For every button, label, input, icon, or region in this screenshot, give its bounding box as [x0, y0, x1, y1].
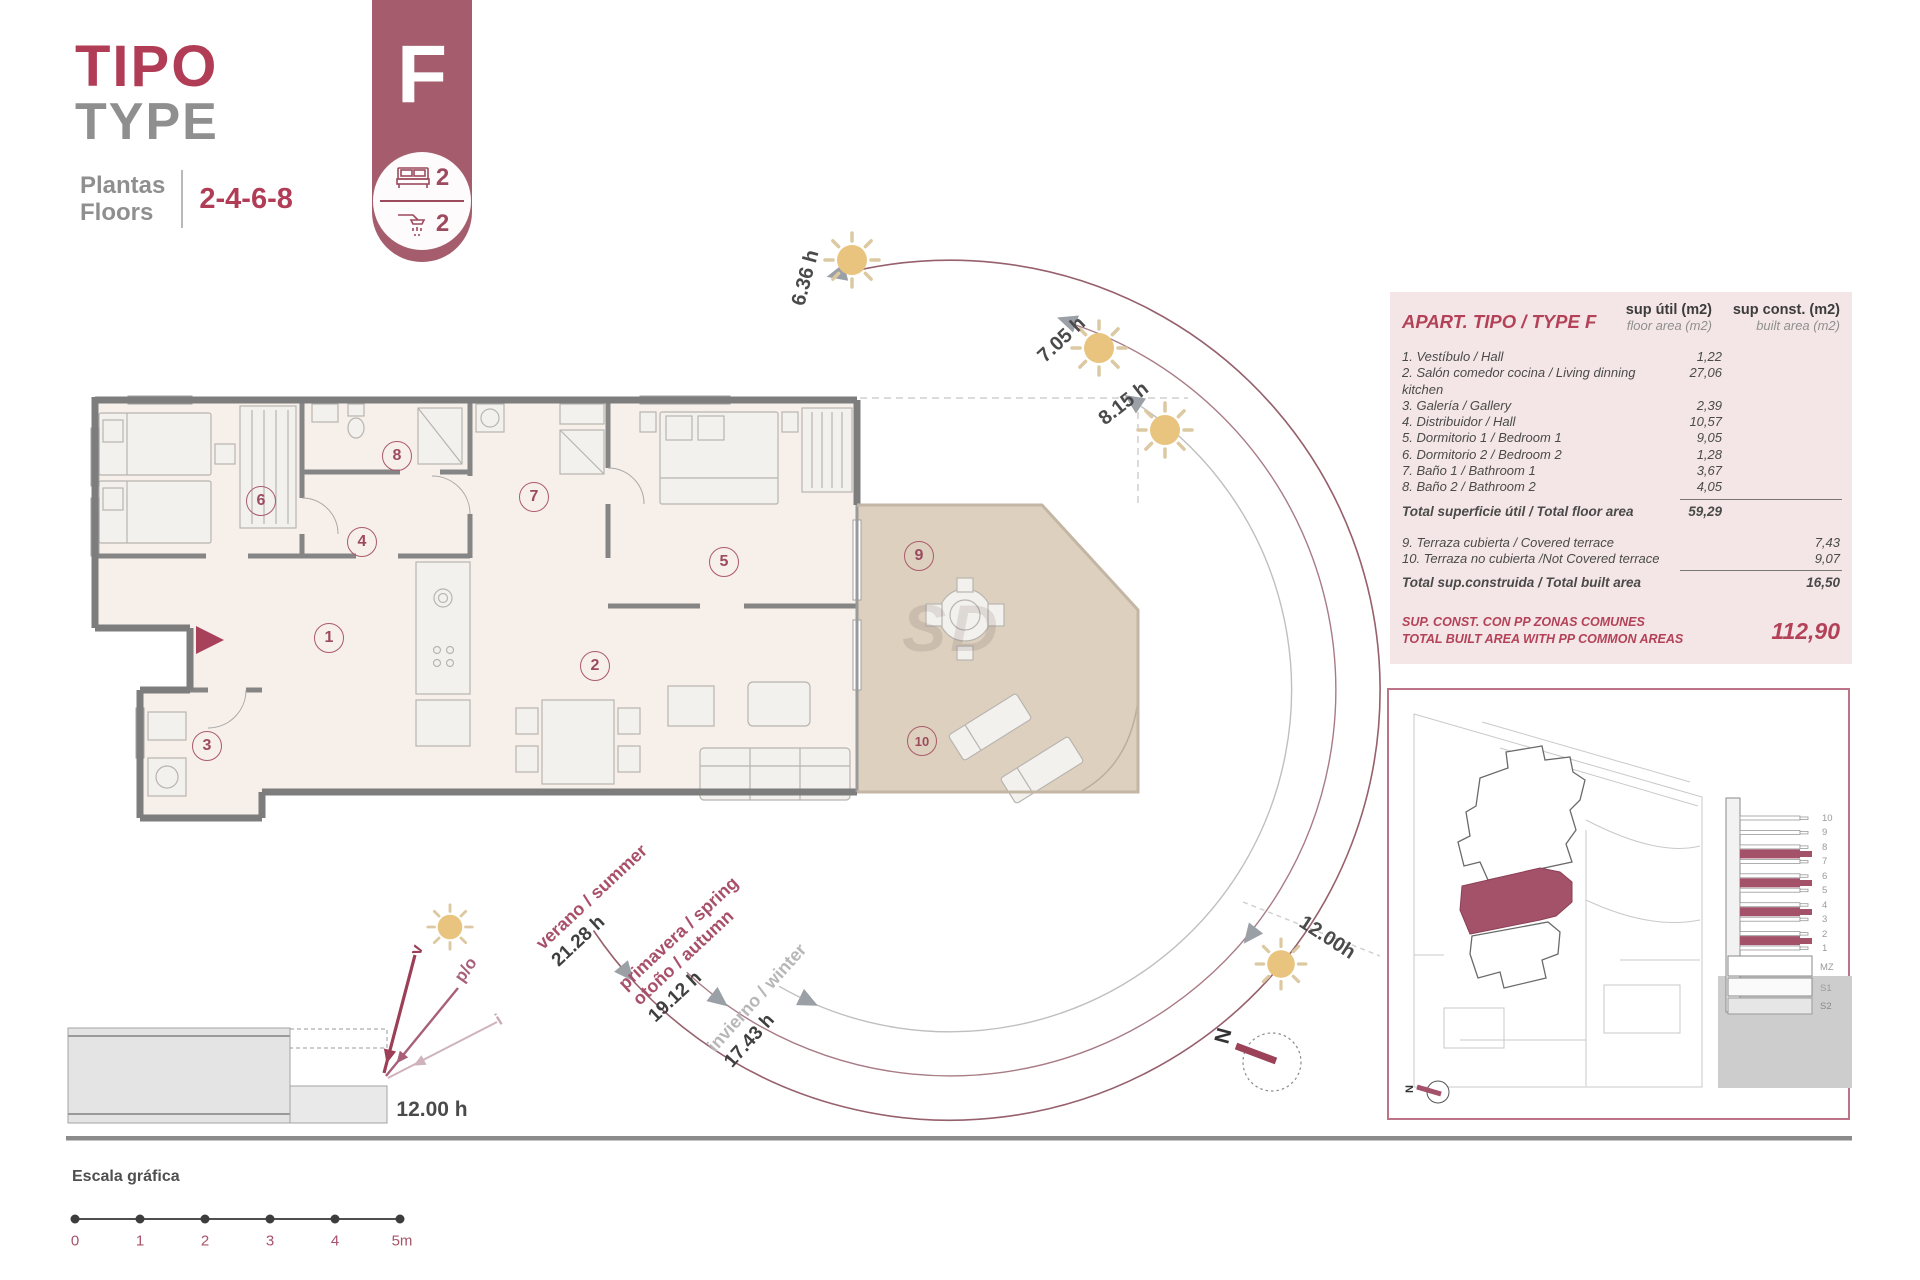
vertical-divider — [181, 170, 183, 228]
table-row: 9. Terraza cubierta / Covered terrace7,4… — [1402, 535, 1840, 551]
room-number-1: 1 — [314, 623, 344, 653]
room-number-3: 3 — [192, 731, 222, 761]
scale-tick: 3 — [266, 1233, 274, 1250]
floor-label: 6 — [1822, 872, 1827, 882]
shower-icon — [395, 211, 431, 237]
room-number-6: 6 — [246, 486, 276, 516]
scale-bar-title: Escala gráfica — [72, 1168, 180, 1186]
title-en: TYPE — [75, 96, 219, 148]
room-number-2: 2 — [580, 651, 610, 681]
table-row: 6. Dormitorio 2 / Bedroom 21,28 — [1402, 447, 1840, 463]
area-table-title: APART. TIPO / TYPE F — [1402, 311, 1602, 333]
area-table-header: APART. TIPO / TYPE F sup útil (m2) floor… — [1402, 302, 1840, 333]
col-built-area: sup const. (m2) built area (m2) — [1712, 302, 1840, 333]
type-badge-letter: F — [372, 28, 472, 122]
table-row: 2. Salón comedor cocina / Living dinning… — [1402, 365, 1840, 398]
divider-line — [66, 1136, 1852, 1141]
floor-label: 8 — [1822, 843, 1827, 853]
common-areas-value: 112,90 — [1771, 618, 1840, 645]
floors-row: Plantas Floors 2-4-6-8 — [80, 170, 293, 228]
table-row: 10. Terraza no cubierta /Not Covered ter… — [1402, 551, 1840, 567]
scale-tick: 2 — [201, 1233, 209, 1250]
sun-path-arcs — [594, 260, 1381, 1120]
floor-label: 5 — [1822, 886, 1827, 896]
section-label-spring-autumn: p/o — [450, 954, 481, 986]
section-label-summer: v — [406, 942, 428, 957]
bed-icon — [395, 165, 431, 191]
bedrooms-count: 2 — [436, 164, 449, 192]
room-number-7: 7 — [519, 482, 549, 512]
title-es: TIPO — [75, 38, 219, 96]
table-row: 7. Baño 1 / Bathroom 13,67 — [1402, 463, 1840, 479]
sun-time-1200: 12.00h — [1295, 911, 1360, 964]
north-compass — [1236, 1033, 1301, 1091]
bathrooms-count: 2 — [436, 210, 449, 238]
area-table-rows: 1. Vestíbulo / Hall1,22 2. Salón comedor… — [1402, 349, 1840, 648]
total-floor-row: Total superficie útil / Total floor area… — [1402, 502, 1840, 521]
col-floor-area: sup útil (m2) floor area (m2) — [1602, 302, 1712, 333]
room-number-4: 4 — [347, 527, 377, 557]
sun-time-705: 7.05 h — [1033, 312, 1090, 367]
floor-label: 4 — [1822, 901, 1827, 911]
table-row: 4. Distribuidor / Hall10,57 — [1402, 414, 1840, 430]
watermark: SD — [902, 590, 1002, 666]
section-label-winter: i — [492, 1010, 507, 1029]
bedrooms-row: 2 — [395, 156, 449, 200]
windows — [91, 396, 861, 758]
area-table: APART. TIPO / TYPE F sup útil (m2) floor… — [1390, 292, 1852, 664]
total-rule — [1680, 570, 1842, 571]
entrance-arrow — [196, 626, 224, 654]
scale-tick: 4 — [331, 1233, 339, 1250]
north-label: N — [1210, 1026, 1237, 1047]
site-plan-inset — [1387, 688, 1850, 1120]
dashed-guides — [860, 398, 1380, 956]
sun-icons — [428, 233, 1306, 989]
page-title: TIPO TYPE — [75, 38, 219, 148]
scale-tick: 0 — [71, 1233, 79, 1250]
room-number-5: 5 — [709, 547, 739, 577]
floor-label: MZ — [1820, 963, 1834, 973]
bathrooms-row: 2 — [395, 202, 449, 246]
table-row: 5. Dormitorio 1 / Bedroom 19,05 — [1402, 430, 1840, 446]
plan-sheet: TIPO TYPE Plantas Floors 2-4-6-8 F 2 — [0, 0, 1920, 1280]
floor-label: S1 — [1820, 984, 1832, 994]
site-north-label: N — [1404, 1085, 1416, 1093]
floor-label: 10 — [1822, 814, 1833, 824]
common-areas-row: SUP. CONST. CON PP ZONAS COMUNES TOTAL B… — [1402, 614, 1840, 648]
floor-label: 7 — [1822, 857, 1827, 867]
type-badge-stats: 2 2 — [373, 152, 471, 250]
floors-label: Plantas Floors — [80, 172, 165, 226]
total-rule — [1680, 499, 1842, 500]
floor-label: 9 — [1822, 828, 1827, 838]
room-number-10: 10 — [907, 726, 937, 756]
total-built-row: Total sup.construida / Total built area1… — [1402, 573, 1840, 592]
floor-label: 1 — [1822, 944, 1827, 954]
sun-time-636: 6.36 h — [788, 248, 825, 309]
section-time: 12.00 h — [396, 1098, 467, 1122]
table-row: 8. Baño 2 / Bathroom 24,05 — [1402, 479, 1840, 495]
internal-walls — [95, 400, 857, 690]
table-row: 3. Galería / Gallery2,39 — [1402, 398, 1840, 414]
floor-label: 3 — [1822, 915, 1827, 925]
scale-tick: 5m — [392, 1233, 413, 1250]
room-number-8: 8 — [382, 441, 412, 471]
floor-label: 2 — [1822, 930, 1827, 940]
room-number-9: 9 — [904, 541, 934, 571]
table-row: 1. Vestíbulo / Hall1,22 — [1402, 349, 1840, 365]
sun-time-815: 8.15 h — [1095, 377, 1154, 430]
scale-tick: 1 — [136, 1233, 144, 1250]
scale-bar — [71, 1215, 405, 1224]
floor-label: S2 — [1820, 1002, 1832, 1012]
floors-value: 2-4-6-8 — [199, 183, 293, 216]
